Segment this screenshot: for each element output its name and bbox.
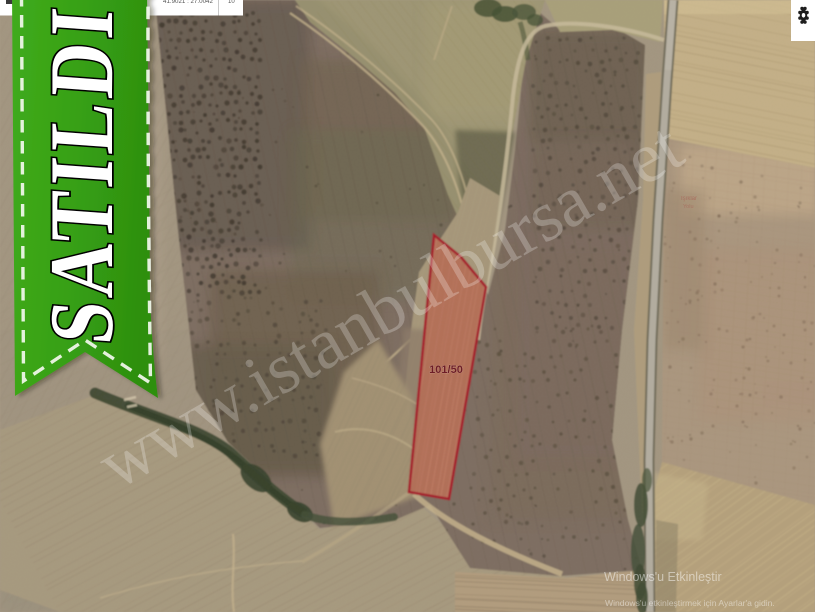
svg-text:41.9021 : 27.0042: 41.9021 : 27.0042 bbox=[163, 0, 213, 5]
svg-text:101/50: 101/50 bbox=[429, 364, 463, 376]
svg-text:Windows'u Etkinleştir: Windows'u Etkinleştir bbox=[604, 570, 722, 584]
svg-text:Windows'u etkinleştirmek için: Windows'u etkinleştirmek için Ayarlar'a … bbox=[605, 598, 775, 608]
svg-text:10: 10 bbox=[228, 0, 235, 5]
svg-text:SATILDI: SATILDI bbox=[32, 0, 133, 347]
svg-text:Işıklar: Işıklar bbox=[681, 196, 697, 202]
svg-text:Yolu: Yolu bbox=[683, 204, 694, 210]
